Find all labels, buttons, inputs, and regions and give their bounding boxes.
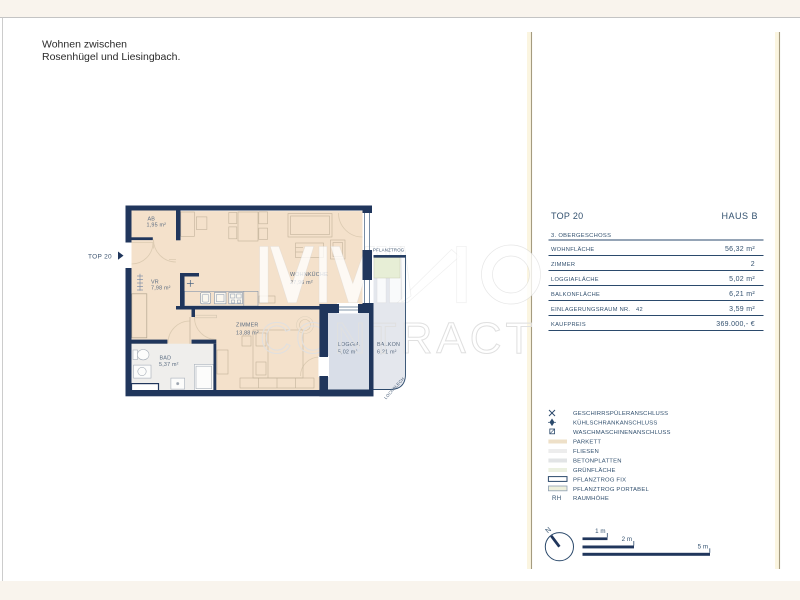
svg-text:3,59 m²: 3,59 m² (729, 306, 755, 313)
svg-text:FLIESEN: FLIESEN (573, 449, 599, 455)
svg-text:3. OBERGESCHOSS: 3. OBERGESCHOSS (551, 233, 611, 239)
svg-text:BAD: BAD (160, 356, 172, 362)
svg-text:5 m: 5 m (698, 543, 708, 550)
svg-text:5,37 m²: 5,37 m² (159, 362, 179, 368)
svg-text:TOP 20: TOP 20 (551, 211, 584, 221)
svg-text:KÜHLSCHRANKANSCHLUSS: KÜHLSCHRANKANSCHLUSS (573, 420, 658, 427)
svg-text:1,95 m²: 1,95 m² (147, 223, 167, 229)
svg-text:BETONPLATTEN: BETONPLATTEN (573, 459, 622, 465)
svg-text:6,21 m²: 6,21 m² (729, 291, 755, 298)
svg-text:PFLANZTROG FIX: PFLANZTROG FIX (573, 478, 626, 484)
svg-text:RAUMHÖHE: RAUMHÖHE (573, 495, 609, 502)
svg-text:WASCHMASCHINENANSCHLUSS: WASCHMASCHINENANSCHLUSS (573, 430, 671, 436)
svg-text:LOGGIAFLÄCHE: LOGGIAFLÄCHE (551, 276, 599, 283)
svg-text:RH: RH (552, 495, 562, 502)
svg-text:EINLAGERUNGSRAUM NR.: EINLAGERUNGSRAUM NR. (551, 307, 630, 313)
svg-text:HAUS B: HAUS B (721, 211, 758, 221)
svg-text:13,88 m²: 13,88 m² (236, 331, 259, 337)
svg-text:1 m: 1 m (595, 528, 605, 535)
svg-text:Wohnen zwischen: Wohnen zwischen (42, 39, 127, 51)
svg-text:CONTRACT: CONTRACT (260, 314, 536, 363)
svg-text:GESCHIRRSPÜLERANSCHLUSS: GESCHIRRSPÜLERANSCHLUSS (573, 410, 668, 417)
svg-text:ZIMMER: ZIMMER (551, 262, 575, 268)
svg-text:TOP 20: TOP 20 (88, 254, 112, 261)
svg-text:PFLANZTROG: PFLANZTROG (373, 248, 405, 253)
svg-text:369.000,- €: 369.000,- € (716, 321, 755, 328)
svg-text:GRÜNFLÄCHE: GRÜNFLÄCHE (573, 467, 616, 474)
svg-text:2 m: 2 m (622, 536, 632, 543)
svg-text:5,02 m²: 5,02 m² (729, 276, 755, 283)
svg-text:PFLANZTROG PORTABEL: PFLANZTROG PORTABEL (573, 487, 649, 493)
svg-text:KAUFPREIS: KAUFPREIS (551, 322, 586, 328)
svg-text:7,98 m²: 7,98 m² (151, 286, 171, 292)
svg-text:56,32 m²: 56,32 m² (725, 246, 755, 253)
svg-text:2: 2 (751, 261, 755, 268)
svg-text:PARKETT: PARKETT (573, 440, 601, 446)
svg-text:BALKONFLÄCHE: BALKONFLÄCHE (551, 291, 600, 298)
svg-text:Rosenhügel und Liesingbach.: Rosenhügel und Liesingbach. (42, 51, 180, 63)
svg-text:WOHNFLÄCHE: WOHNFLÄCHE (551, 246, 594, 253)
svg-text:ZIMMER: ZIMMER (236, 323, 258, 329)
svg-text:42: 42 (636, 307, 643, 313)
